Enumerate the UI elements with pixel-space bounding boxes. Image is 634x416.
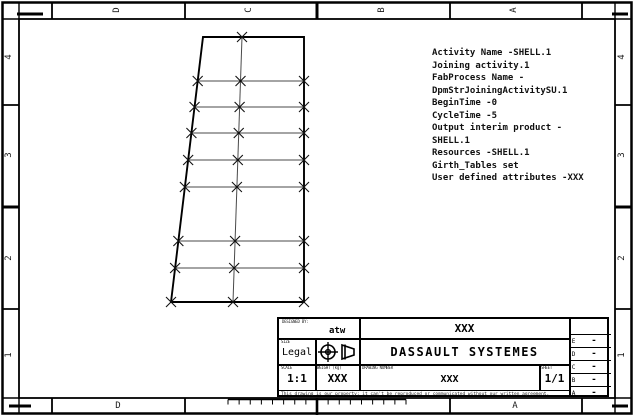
projection-symbol-icon	[318, 341, 358, 363]
revision-row: A-	[569, 386, 611, 399]
annotation-line: Output interim product -	[432, 122, 584, 135]
zone-top-d: D	[113, 3, 123, 17]
scale-label: SCALE	[281, 366, 292, 370]
revision-row: C-	[569, 360, 611, 373]
zone-left-2: 2	[5, 251, 15, 265]
mesh-center-line	[233, 37, 242, 302]
zone-right-1: 1	[618, 348, 628, 362]
revision-row: D-	[569, 347, 611, 360]
annotation-line: FabProcess Name -	[432, 72, 584, 85]
zone-right-2: 2	[618, 251, 628, 265]
zone-bottom-d: D	[111, 402, 125, 412]
title-value: XXX	[360, 322, 569, 335]
zone-right-4: 4	[618, 50, 628, 64]
zone-left-3: 3	[5, 148, 15, 162]
annotation-line: Activity Name -SHELL.1	[432, 47, 584, 60]
designed-by-value: atw	[329, 326, 345, 336]
annotation-block: Activity Name -SHELL.1Joining activity.1…	[432, 47, 584, 185]
zone-bottom-a: A	[508, 402, 522, 412]
sheet-value: 1/1	[539, 372, 570, 385]
size-value: Legal	[279, 347, 315, 358]
annotation-line: User defined attributes -XXX	[432, 172, 584, 185]
scale-value: 1:1	[279, 372, 315, 385]
zone-top-b: B	[378, 3, 388, 17]
annotation-line: Girth_Tables set	[432, 160, 584, 173]
size-label: SIZE	[281, 340, 290, 344]
meshed-plate-drawing	[166, 32, 309, 307]
zone-left-4: 4	[5, 50, 15, 64]
drawing-number-value: XXX	[360, 374, 539, 385]
annotation-line: BeginTime -0	[432, 97, 584, 110]
centering-ruler	[228, 400, 406, 405]
annotation-line: SHELL.1	[432, 135, 584, 148]
zone-top-a: A	[510, 3, 520, 17]
weight-value: XXX	[316, 372, 359, 385]
annotation-line: CycleTime -5	[432, 110, 584, 123]
weight-label: WEIGHT (kg)	[317, 366, 341, 370]
revision-row: B-	[569, 373, 611, 386]
annotation-line: Resources -SHELL.1	[432, 147, 584, 160]
drawing-sheet: D C B A D A 4 3 2 1 4 3 2 1 Activity Nam…	[0, 0, 634, 416]
revision-table: E-D-C-B-A-	[569, 319, 611, 395]
zone-top-c: C	[245, 3, 255, 17]
drawing-number-label: DRAWING NUMBER	[362, 366, 393, 370]
sheet-label: SHEET	[541, 366, 552, 370]
designed-by-label: DESIGNED BY:	[282, 320, 309, 324]
title-block: DESIGNED BY: atw XXX SIZE Legal DASSAULT…	[277, 317, 609, 397]
property-notice: This drawing is our property; it can't b…	[281, 391, 568, 399]
company-name: DASSAULT SYSTEMES	[360, 345, 569, 359]
zone-right-3: 3	[618, 148, 628, 162]
annotation-line: DpmStrJoiningActivitySU.1	[432, 85, 584, 98]
revision-row: E-	[569, 334, 611, 347]
revision-value: -	[578, 387, 610, 400]
revision-letter: A	[569, 387, 578, 400]
zone-left-1: 1	[5, 348, 15, 362]
tb-divider	[279, 338, 570, 340]
annotation-line: Joining activity.1	[432, 60, 584, 73]
